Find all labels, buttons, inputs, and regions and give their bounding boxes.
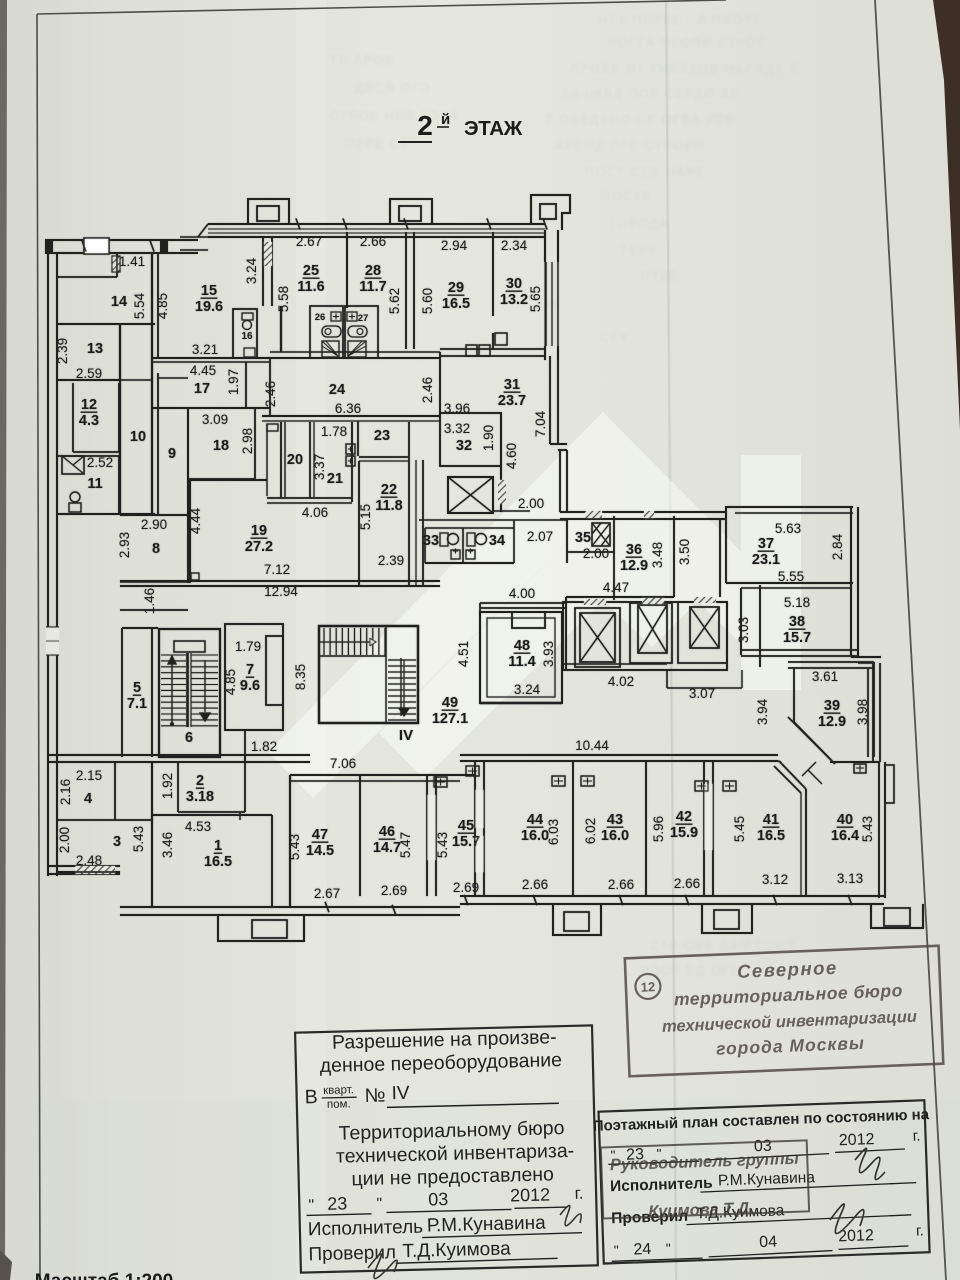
svg-text:СЕК: СЕК	[600, 331, 629, 345]
svg-text:ЭТАЖ: ЭТАЖ	[464, 117, 523, 140]
svg-text:12: 12	[640, 979, 655, 995]
svg-text:г.: г.	[916, 1222, 924, 1239]
svg-text:04: 04	[759, 1234, 777, 1252]
svg-text:ГОРОДА: ГОРОДА	[610, 217, 669, 231]
svg-text:кварт.: кварт.	[323, 1084, 354, 1097]
svg-text:МОСКВ: МОСКВ	[600, 189, 652, 203]
svg-text:Куимова Т.Д.: Куимова Т.Д.	[648, 1199, 754, 1221]
svg-text:Р.М.Кунавина: Р.М.Кунавина	[427, 1213, 547, 1237]
svg-text:ТЕ АРОВ: ТЕ АРОВ	[330, 53, 394, 67]
svg-text:АРЕНД ОГЕ СТРОЕН: АРЕНД ОГЕ СТРОЕН	[555, 139, 705, 153]
svg-text:Проверил: Проверил	[308, 1242, 396, 1265]
svg-text:03: 03	[428, 1189, 449, 1209]
svg-text:2012: 2012	[839, 1131, 875, 1149]
svg-text:Т.Д.Куимова: Т.Д.Куимова	[402, 1238, 511, 1262]
svg-text:№: №	[364, 1084, 385, 1107]
svg-text:ОТДЕ: ОТДЕ	[640, 269, 680, 283]
svg-text:": "	[666, 1240, 672, 1256]
svg-text:НВУ ПОУКЕ - Л ПАОТЕ: НВУ ПОУКЕ - Л ПАОТЕ	[598, 13, 762, 27]
svg-text:2012: 2012	[510, 1184, 551, 1205]
svg-text:2: 2	[417, 110, 433, 141]
svg-text:24: 24	[633, 1241, 651, 1259]
svg-text:Масштаб 1:200: Масштаб 1:200	[35, 1271, 174, 1280]
svg-text:": "	[376, 1196, 382, 1213]
svg-text:ПЕРЕ СЕ: ПЕРЕ СЕ	[345, 137, 410, 151]
svg-text:пом.: пом.	[327, 1098, 351, 1111]
svg-text:Т ОВЕДЕНО СЕ ОГВА УСЕ: Т ОВЕДЕНО СЕ ОГВА УСЕ	[545, 113, 735, 127]
svg-text:Р.М.Кунавина: Р.М.Кунавина	[718, 1169, 816, 1189]
svg-text:ДЕСЯ ОГО: ДЕСЯ ОГО	[355, 81, 431, 95]
svg-text:ВОГТА НЕОПР СТРОЕ: ВОГТА НЕОПР СТРОЕ	[608, 36, 767, 50]
svg-text:г.: г.	[574, 1184, 583, 1203]
svg-text:ПРОВЕ ОТ ГНЕЗДОВ НАРЯДУ Е: ПРОВЕ ОТ ГНЕЗДОВ НАРЯДУ Е	[570, 62, 799, 76]
svg-text:ПОСТ СЕВ НАРЕ: ПОСТ СЕВ НАРЕ	[585, 165, 706, 179]
svg-text:й: й	[441, 111, 450, 128]
svg-text:23: 23	[327, 1193, 348, 1213]
svg-text:": "	[308, 1197, 314, 1214]
svg-text:Северное: Северное	[737, 957, 838, 982]
svg-text:В: В	[304, 1086, 318, 1108]
svg-text:Исполнитель: Исполнитель	[308, 1217, 424, 1241]
svg-text:ТЕРР: ТЕРР	[620, 243, 659, 257]
svg-text:г.: г.	[912, 1127, 920, 1144]
svg-text:IV: IV	[391, 1083, 410, 1104]
svg-text:ДА НКВД ПОЕ СЕРДО ВЕ: ДА НКВД ПОЕ СЕРДО ВЕ	[560, 87, 740, 101]
svg-text:Исполнитель: Исполнитель	[610, 1175, 713, 1196]
svg-text:СТР ОВЕ ДАН СОСТ: СТР ОВЕ ДАН СОСТ	[650, 939, 796, 953]
svg-text:": "	[614, 1242, 620, 1258]
